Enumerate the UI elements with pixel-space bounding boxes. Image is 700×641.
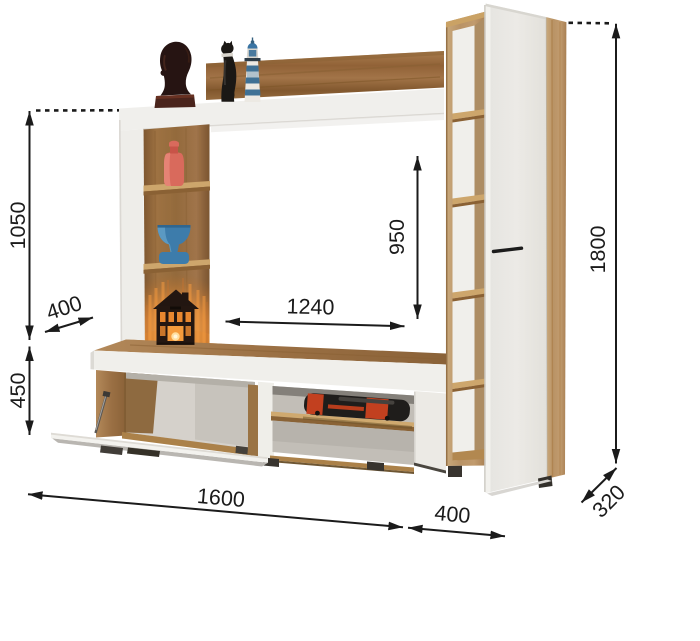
svg-text:1050: 1050: [6, 202, 30, 250]
svg-text:400: 400: [434, 501, 472, 528]
svg-text:1600: 1600: [196, 484, 246, 512]
svg-text:450: 450: [6, 373, 30, 409]
svg-text:1800: 1800: [586, 226, 610, 274]
svg-text:950: 950: [385, 219, 409, 255]
svg-text:1240: 1240: [286, 294, 334, 319]
